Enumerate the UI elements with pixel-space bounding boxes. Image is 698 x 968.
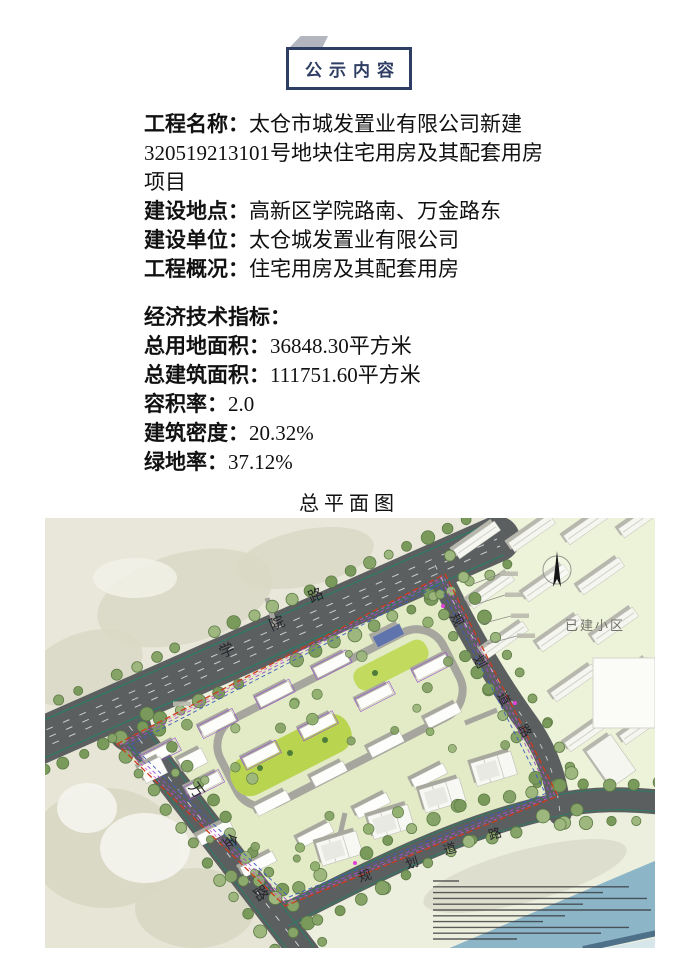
indicator-value: 2.0 bbox=[228, 392, 254, 416]
indicator-green-rate: 绿地率：37.12% bbox=[144, 448, 560, 477]
field-label: 建设单位： bbox=[144, 228, 249, 252]
field-project-name: 工程名称：太仓市城发置业有限公司新建320519213101号地块住宅用房及其配… bbox=[144, 110, 560, 197]
indicator-value: 20.32% bbox=[249, 421, 314, 445]
field-label: 建设地点： bbox=[144, 199, 249, 223]
indicator-density: 建筑密度：20.32% bbox=[144, 419, 560, 448]
plan-title: 总平面图 bbox=[0, 487, 698, 516]
indicator-floor-area: 总建筑面积：111751.60平方米 bbox=[144, 361, 560, 390]
field-value: 高新区学院路南、万金路东 bbox=[249, 199, 501, 223]
fold-decoration bbox=[290, 36, 328, 47]
site-plan-image: 学院路万金路规划道路规划道路已建小区 bbox=[45, 518, 655, 948]
notice-content: 工程名称：太仓市城发置业有限公司新建320519213101号地块住宅用房及其配… bbox=[144, 110, 560, 477]
field-value: 太仓城发置业有限公司 bbox=[249, 228, 459, 252]
indicator-plot-ratio: 容积率：2.0 bbox=[144, 390, 560, 419]
svg-text:已建小区: 已建小区 bbox=[565, 618, 625, 633]
indicator-label: 总用地面积： bbox=[144, 334, 270, 358]
indicator-value: 36848.30平方米 bbox=[270, 334, 412, 358]
indicator-label: 容积率： bbox=[144, 392, 228, 416]
field-value: 住宅用房及其配套用房 bbox=[249, 257, 459, 281]
indicator-land-area: 总用地面积：36848.30平方米 bbox=[144, 332, 560, 361]
field-label: 工程名称： bbox=[144, 112, 249, 136]
title-box-wrap: 公示内容 bbox=[286, 47, 412, 90]
indicators-title: 经济技术指标： bbox=[144, 303, 560, 332]
indicator-value: 37.12% bbox=[228, 450, 293, 474]
field-label: 工程概况： bbox=[144, 257, 249, 281]
indicator-label: 建筑密度： bbox=[144, 421, 249, 445]
indicator-value: 111751.60平方米 bbox=[270, 363, 421, 387]
indicator-label: 总建筑面积： bbox=[144, 363, 270, 387]
indicator-label: 绿地率： bbox=[144, 450, 228, 474]
notice-page: 公示内容 工程名称：太仓市城发置业有限公司新建320519213101号地块住宅… bbox=[0, 0, 698, 968]
spacer bbox=[144, 284, 560, 303]
site-plan-svg: 学院路万金路规划道路规划道路已建小区 bbox=[45, 518, 655, 948]
field-builder: 建设单位：太仓城发置业有限公司 bbox=[144, 226, 560, 255]
field-location: 建设地点：高新区学院路南、万金路东 bbox=[144, 197, 560, 226]
field-overview: 工程概况：住宅用房及其配套用房 bbox=[144, 255, 560, 284]
page-title: 公示内容 bbox=[286, 47, 412, 90]
